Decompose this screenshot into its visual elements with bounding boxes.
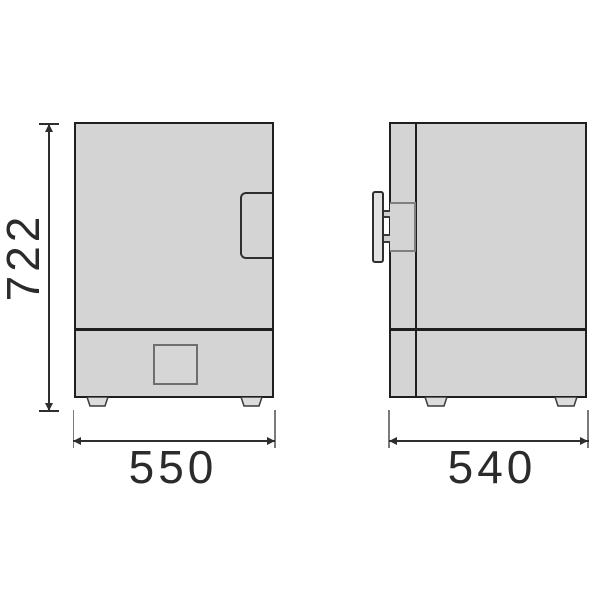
depth-arrow-left-icon xyxy=(389,436,397,446)
height-arrow-down-icon xyxy=(44,403,54,411)
width-arrow-right-icon xyxy=(267,436,275,446)
side-panel-divider-line xyxy=(391,328,585,331)
side-view-body xyxy=(389,122,587,398)
front-panel-divider-line xyxy=(76,328,272,331)
width-arrow-left-icon xyxy=(73,436,81,446)
dimension-drawing: 722 550 540 xyxy=(0,0,600,600)
width-dimension-label: 550 xyxy=(98,445,248,489)
side-foot-right xyxy=(554,397,579,408)
front-door-handle-recess xyxy=(240,192,272,259)
side-door-edge-line xyxy=(415,124,417,396)
side-handle-bar xyxy=(372,191,384,263)
front-foot-right xyxy=(240,397,264,408)
depth-arrow-right-icon xyxy=(580,436,588,446)
front-foot-left xyxy=(86,397,110,408)
height-arrow-up-icon xyxy=(44,124,54,132)
side-handle-mount-plate xyxy=(390,202,416,252)
height-dimension-label: 722 xyxy=(1,197,49,317)
depth-dimension-label: 540 xyxy=(417,445,567,489)
side-foot-left xyxy=(424,397,449,408)
front-control-panel-square xyxy=(153,344,198,385)
